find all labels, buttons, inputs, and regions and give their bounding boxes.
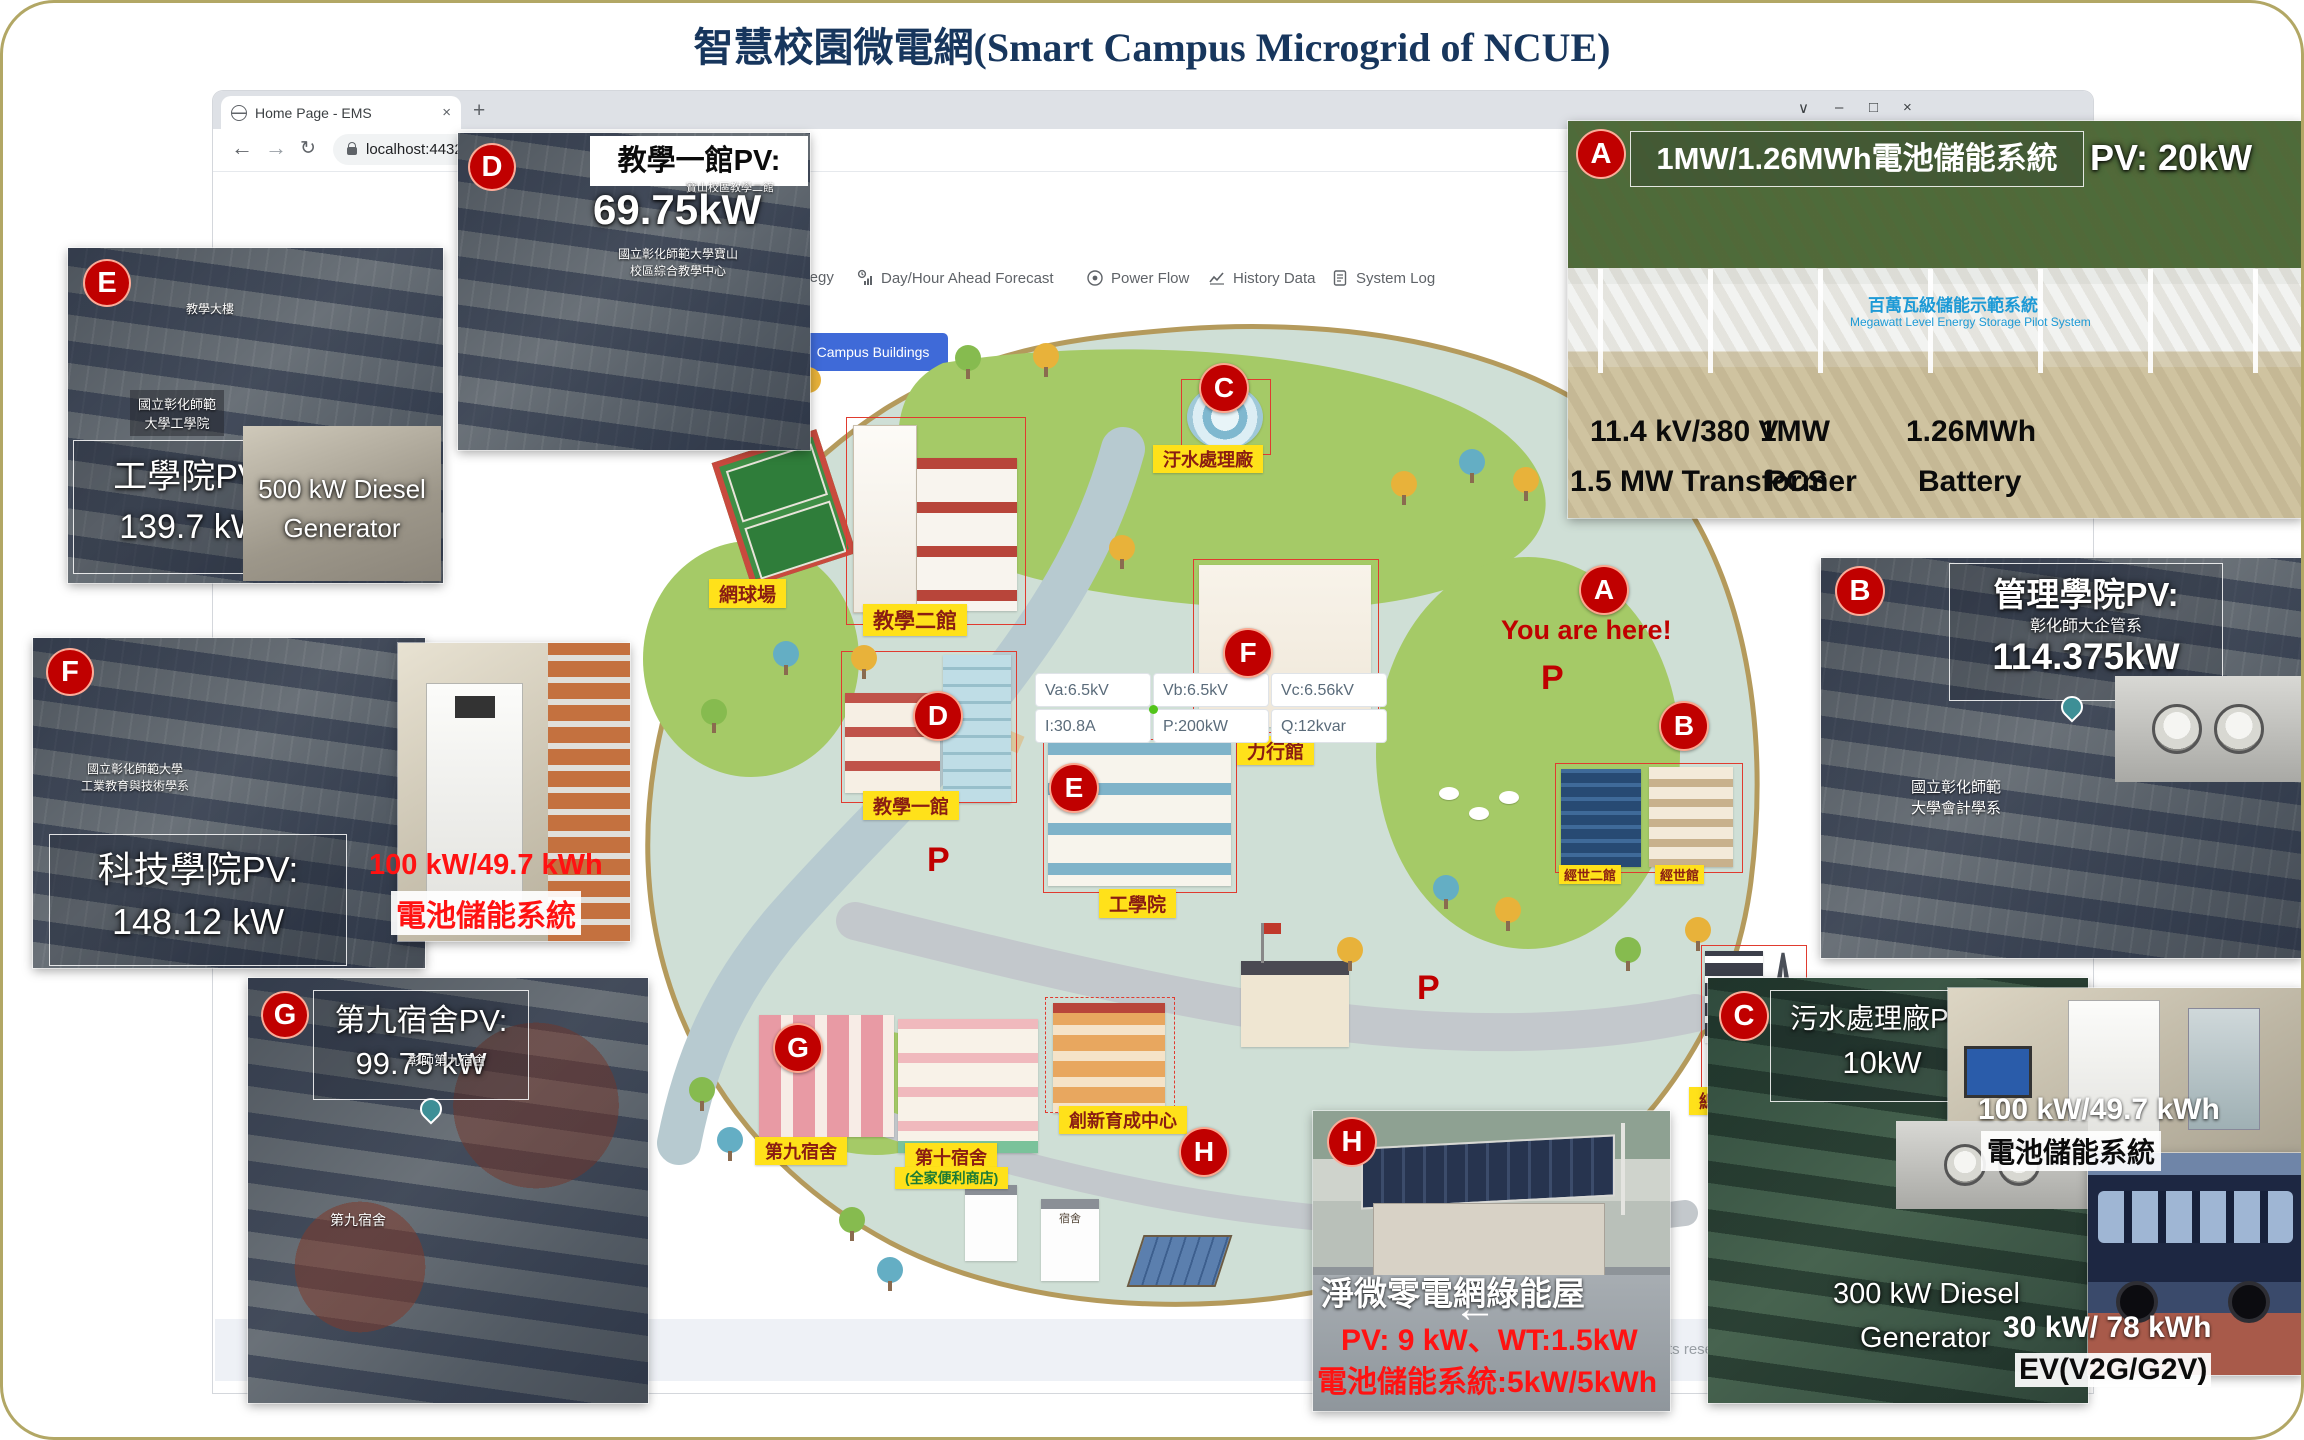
tooltip-q: Q:12kvar	[1271, 709, 1387, 743]
callout-f-title-box: 科技學院PV: 148.12 kW	[49, 834, 347, 966]
tree-icon	[689, 1077, 715, 1103]
building-dorm10	[898, 1019, 1038, 1153]
power-tooltip: Va:6.5kV Vb:6.5kV Vc:6.56kV I:30.8A P:20…	[1035, 673, 1393, 743]
callout-c-badge: C	[1719, 991, 1769, 1041]
tooltip-vc: Vc:6.56kV	[1271, 673, 1387, 707]
callout-c-diesel-2: Generator	[1860, 1322, 1991, 1355]
history-chart-icon	[1208, 269, 1226, 287]
callout-f-value: 148.12 kW	[50, 901, 346, 943]
house-wall	[1373, 1203, 1605, 1277]
callout-g-title-box: 第九宿舍PV: 99.75 kW	[313, 990, 529, 1100]
window-restore-icon[interactable]: □	[1869, 99, 1878, 116]
flag	[1264, 923, 1281, 934]
map-label-building-b2: 經世館	[1655, 865, 1704, 884]
tooltip-p: P:200kW	[1153, 709, 1269, 743]
canopy-post	[2253, 269, 2258, 373]
building-outline-b	[1555, 763, 1743, 873]
callout-c-battery-spec: 100 kW/49.7 kWh	[1978, 1093, 2220, 1127]
callout-b-value: 114.375kW	[1950, 636, 2222, 678]
callout-f-battery-label: 電池儲能系統	[391, 891, 581, 935]
nav-item-history-data[interactable]: History Data	[1208, 269, 1316, 287]
callout-c-ev-label: EV(V2G/G2V)	[2015, 1353, 2211, 1387]
callout-g-photo: G 第九宿舍PV: 99.75 kW 彰師第九宿舍 第九宿舍	[248, 978, 648, 1403]
tree-icon	[1615, 937, 1641, 963]
power-flow-target-icon	[1086, 269, 1104, 287]
window-menu-icon[interactable]: ∨	[1798, 99, 1809, 117]
tree-icon	[717, 1127, 743, 1153]
canopy-post	[2148, 269, 2153, 373]
map-label-teaching2: 教學二館	[863, 604, 967, 636]
system-log-document-icon	[1331, 269, 1349, 287]
tree-icon	[701, 699, 727, 725]
back-icon[interactable]: ←	[231, 135, 253, 161]
tree-icon	[851, 645, 877, 671]
building-outline-teaching2	[846, 417, 1026, 625]
callout-a-pv: PV: 20kW	[2090, 137, 2252, 179]
tree-icon	[1495, 897, 1521, 923]
bird	[1439, 787, 1459, 800]
bird	[1499, 791, 1519, 804]
hut-1	[965, 1185, 1017, 1261]
wind-turbine-pole	[1621, 1123, 1625, 1215]
callout-b-photo: B 管理學院PV: 彰化師大企管系 114.375kW 國立彰化師範 大學會計學…	[1821, 558, 2303, 958]
map-marker-c[interactable]: C	[1199, 363, 1249, 413]
map-marker-h[interactable]: H	[1179, 1127, 1229, 1177]
solar-panel-illustration	[1127, 1235, 1233, 1287]
map-marker-d[interactable]: D	[913, 691, 963, 741]
tree-icon	[1459, 449, 1485, 475]
callout-a-badge: A	[1576, 129, 1626, 179]
tree-icon	[1433, 875, 1459, 901]
new-tab-button[interactable]: +	[473, 99, 485, 123]
nav-item-system-log[interactable]: System Log	[1331, 269, 1435, 287]
power-meter-icon	[1944, 1144, 1986, 1186]
tree-icon	[839, 1207, 865, 1233]
callout-a-spec-capacity: 1.26MWh	[1906, 415, 2036, 449]
map-marker-a[interactable]: A	[1579, 565, 1629, 615]
tree-icon	[1033, 343, 1059, 369]
bus-wheel	[2228, 1281, 2270, 1323]
slide-frame: 智慧校園微電網(Smart Campus Microgrid of NCUE) …	[0, 0, 2304, 1440]
map-label-building-b1: 經世二館	[1559, 865, 1621, 884]
power-meter-icon	[2214, 704, 2264, 754]
browser-tab[interactable]: Home Page - EMS ×	[221, 96, 461, 129]
hut-sign: 宿舍	[1059, 1213, 1081, 1225]
canopy-post	[1598, 269, 1603, 373]
callout-h-badge: H	[1327, 1117, 1377, 1167]
bird	[1469, 807, 1489, 820]
callout-a-spec-battery: Battery	[1918, 465, 2021, 499]
tooltip-i: I:30.8A	[1035, 709, 1151, 743]
callout-c-diesel-1: 300 kW Diesel	[1833, 1278, 2020, 1311]
monitor-screen	[1964, 1046, 2032, 1098]
callout-f-photo: F 國立彰化師範大學 工業教育與技術學系 科技學院PV: 148.12 kW	[33, 638, 425, 968]
callout-b-tag: 彰化師大企管系	[1950, 612, 2222, 636]
tree-icon	[1337, 937, 1363, 963]
map-label-engineering: 工學院	[1099, 889, 1176, 918]
callout-f-battery-spec: 100 kW/49.7 kWh	[369, 849, 603, 882]
callout-b-badge: B	[1835, 566, 1885, 616]
callout-b-meters-photo	[2115, 676, 2301, 782]
callout-g-badge: G	[261, 991, 309, 1039]
map-marker-e[interactable]: E	[1049, 763, 1099, 813]
bus-windows	[2098, 1191, 2293, 1243]
tooltip-va: Va:6.5kV	[1035, 673, 1151, 707]
canopy-post	[1818, 269, 1823, 373]
callout-f-badge: F	[46, 648, 94, 696]
callout-e-place-label: 國立彰化師範 大學工學院	[130, 390, 224, 436]
callout-e-generator-photo: 500 kW Diesel Generator	[243, 426, 441, 581]
building-gate	[1241, 961, 1349, 1047]
tree-icon	[773, 641, 799, 667]
callout-e-badge: E	[83, 259, 131, 307]
map-label-teaching1: 教學一館	[863, 791, 959, 820]
favicon-globe-icon	[231, 105, 247, 121]
tree-icon	[1685, 917, 1711, 943]
callout-e-diesel-1: 500 kW Diesel	[243, 474, 441, 505]
parking-p: P	[927, 841, 950, 880]
you-are-here-text: You are here!	[1501, 615, 1672, 646]
callout-g-map-tag: 彰師第九宿舍	[408, 1050, 486, 1069]
map-label-sewage: 汙水處理廠	[1153, 445, 1263, 473]
callout-a-spec-pcs: PCS	[1766, 465, 1828, 499]
map-marker-f[interactable]: F	[1223, 628, 1273, 678]
callout-a-photo: A 1MW/1.26MWh電池儲能系統 PV: 20kW 百萬瓦級儲能示範系統 …	[1568, 121, 2303, 518]
callout-d-value: 69.75kW	[593, 186, 761, 234]
forecast-clock-bars-icon	[856, 269, 874, 287]
callout-a-spec-voltage: 11.4 kV/380 V	[1590, 415, 1779, 449]
callout-d-photo: D 教學一館PV: 寶山校區教學二館 69.75kW 國立彰化師範大學寶山 校區…	[458, 133, 810, 450]
callout-d-badge: D	[468, 143, 516, 191]
solar-roof	[1361, 1134, 1615, 1209]
callout-h-title: 淨微零電網綠能屋	[1321, 1267, 1585, 1315]
tab-close-icon[interactable]: ×	[442, 104, 451, 121]
map-label-dorm9: 第九宿舍	[755, 1137, 847, 1165]
tree-icon	[1109, 535, 1135, 561]
callout-c-battery-label: 電池儲能系統	[1981, 1131, 2161, 1171]
map-marker-b[interactable]: B	[1659, 701, 1709, 751]
parking-p: P	[1541, 659, 1564, 698]
map-label-tennis: 網球場	[709, 579, 786, 608]
callout-d-place-label: 國立彰化師範大學寶山 校區綜合教學中心	[573, 245, 783, 279]
power-meter-icon	[2152, 704, 2202, 754]
nav-item-forecast[interactable]: Day/Hour Ahead Forecast	[856, 269, 1054, 287]
callout-b-title: 管理學院PV:	[1950, 568, 2222, 616]
map-label-incubation: 創新育成中心	[1059, 1106, 1187, 1134]
callout-c-ev-spec: 30 kW/ 78 kWh	[2003, 1311, 2211, 1345]
callout-a-title: 1MW/1.26MWh電池儲能系統	[1630, 131, 2084, 187]
cabinet-display	[455, 696, 495, 718]
callout-e-photo: E 教學大樓 國立彰化師範 大學工學院 工學院PV: 139.7 kW 500 …	[68, 248, 443, 583]
callout-g-place-label: 第九宿舍	[330, 1210, 386, 1230]
window-minimize-icon[interactable]: –	[1835, 99, 1843, 116]
callout-b-place-label: 國立彰化師範 大學會計學系	[1866, 776, 2046, 818]
callout-h-battery: 電池儲能系統:5kW/5kWh	[1317, 1357, 1657, 1401]
canopy-post	[1708, 269, 1713, 373]
callout-a-banner-en: Megawatt Level Energy Storage Pilot Syst…	[1850, 315, 2091, 329]
callout-g-title: 第九宿舍PV:	[314, 995, 528, 1040]
map-marker-g[interactable]: G	[773, 1023, 823, 1073]
nav-item-power-flow[interactable]: Power Flow	[1086, 269, 1189, 287]
tree-icon	[1391, 471, 1417, 497]
map-label-dorm10-sub: (全家便利商店)	[895, 1167, 1008, 1189]
tab-title: Home Page - EMS	[255, 105, 434, 121]
parking-p: P	[1417, 969, 1440, 1008]
reload-icon[interactable]: ↻	[300, 137, 316, 160]
callout-a-banner-zh: 百萬瓦級儲能示範系統	[1868, 291, 2038, 316]
tree-icon	[955, 345, 981, 371]
callout-e-roof-label: 教學大樓	[186, 300, 234, 317]
tooltip-vb: Vb:6.5kV	[1153, 673, 1269, 707]
callout-f-place-label: 國立彰化師範大學 工業教育與技術學系	[81, 760, 189, 794]
tree-icon	[1513, 467, 1539, 493]
callout-f-title: 科技學院PV:	[50, 841, 346, 893]
lock-icon	[347, 147, 357, 155]
callout-a-spec-1mw: 1MW	[1760, 415, 1830, 449]
callout-e-diesel-2: Generator	[243, 513, 441, 544]
building-outline-incubation	[1045, 997, 1175, 1113]
hut-2: 宿舍	[1041, 1199, 1099, 1281]
status-dot	[1149, 705, 1158, 714]
window-close-icon[interactable]: ×	[1903, 99, 1912, 116]
page-title: 智慧校園微電網(Smart Campus Microgrid of NCUE)	[3, 15, 2301, 73]
callout-h-pv-wt: PV: 9 kW、WT:1.5kW	[1341, 1315, 1638, 1359]
forward-icon[interactable]: →	[265, 135, 287, 161]
tree-icon	[877, 1257, 903, 1283]
